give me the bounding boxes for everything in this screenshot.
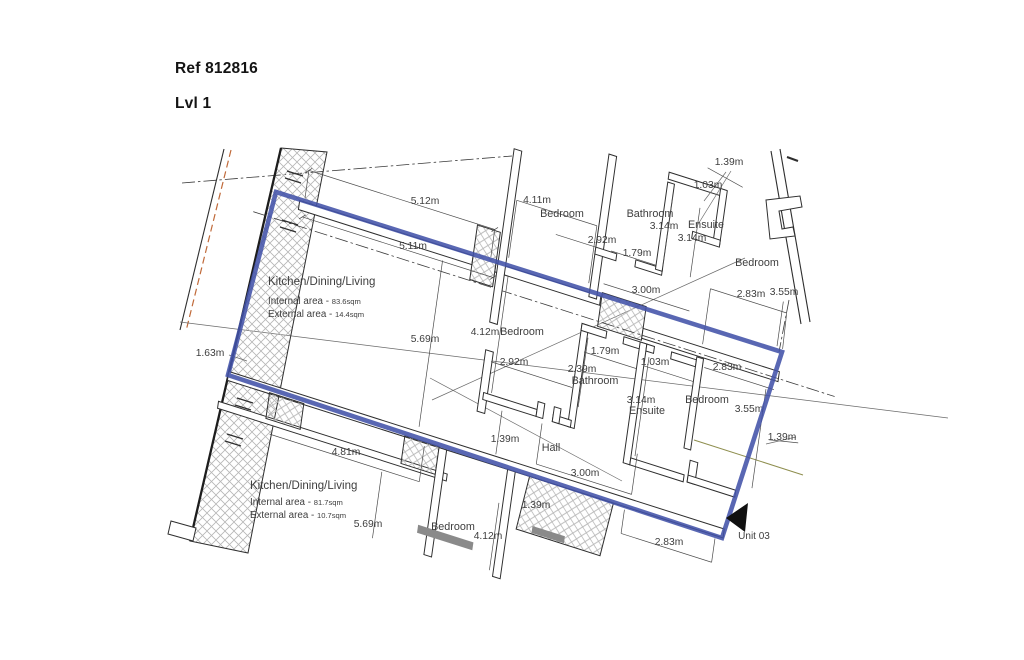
room-label: Bathroom [572,375,619,387]
room-label: Ensuite [629,405,665,417]
room-label: Bedroom [431,521,475,533]
dimension-label: 5.11m [399,241,427,252]
dimension-label: 1.03m [694,180,723,191]
dimension-label: 3.14m [650,221,679,232]
dimension-label: 4.12m [471,327,500,338]
dimension-label: 1.63m [196,348,225,359]
room-label: Bedroom [735,257,779,269]
dimension-label: 2.39m [568,364,597,375]
floorplan-canvas: 5.12m4.11m1.39m1.03m3.14m3.14m2.92m1.79m… [0,0,1024,660]
dimension-label: 2.92m [500,357,529,368]
dimension-label: 5.69m [411,334,440,345]
floorplan-page: Ref 812816 Lvl 1 [0,0,1024,660]
dimension-label: 3.00m [571,468,600,479]
unit-label: Unit 03 [738,531,770,542]
dimension-label: 4.11m [523,195,551,206]
room-label: Bedroom [685,394,729,406]
area-label: Internal area - 83.6sqm [268,296,361,307]
dimension-label: 1.79m [591,346,620,357]
entrance-arrow-icon [726,503,748,532]
room-label: Kitchen/Dining/Living [250,480,357,492]
dimension-label: 4.12m [474,531,503,542]
dimension-label: 1.39m [768,432,797,443]
area-label: External area - 10.7sqm [250,510,346,521]
dimension-label: 2.83m [713,362,742,373]
dimension-label: 2.83m [737,289,766,300]
dimension-label: 1.79m [623,248,652,259]
room-label: Ensuite [688,219,724,231]
reference-number: Ref 812816 [175,60,258,78]
dimension-label: 3.00m [632,285,661,296]
dimension-label: 2.92m [588,235,617,246]
dimension-label: 1.03m [641,357,670,368]
dimension-label: 1.39m [491,434,520,445]
area-label: External area - 14.4sqm [268,309,364,320]
room-label: Bedroom [500,326,544,338]
dimension-label: 3.55m [735,404,764,415]
area-label: Internal area - 81.7sqm [250,497,343,508]
dimension-label: 1.39m [522,500,551,511]
dimension-label: 3.55m [770,287,799,298]
room-label: Bedroom [540,208,584,220]
dimension-label: 5.69m [354,519,383,530]
level-label: Lvl 1 [175,95,211,113]
room-label: Kitchen/Dining/Living [268,276,375,288]
dimension-label: 5.12m [411,196,440,207]
dimension-label: 4.81m [332,447,361,458]
room-label: Hall [542,442,561,454]
dimension-label: 2.83m [655,537,684,548]
dimension-label: 1.39m [715,157,744,168]
dimension-label: 3.14m [678,233,707,244]
room-label: Bathroom [627,208,674,220]
